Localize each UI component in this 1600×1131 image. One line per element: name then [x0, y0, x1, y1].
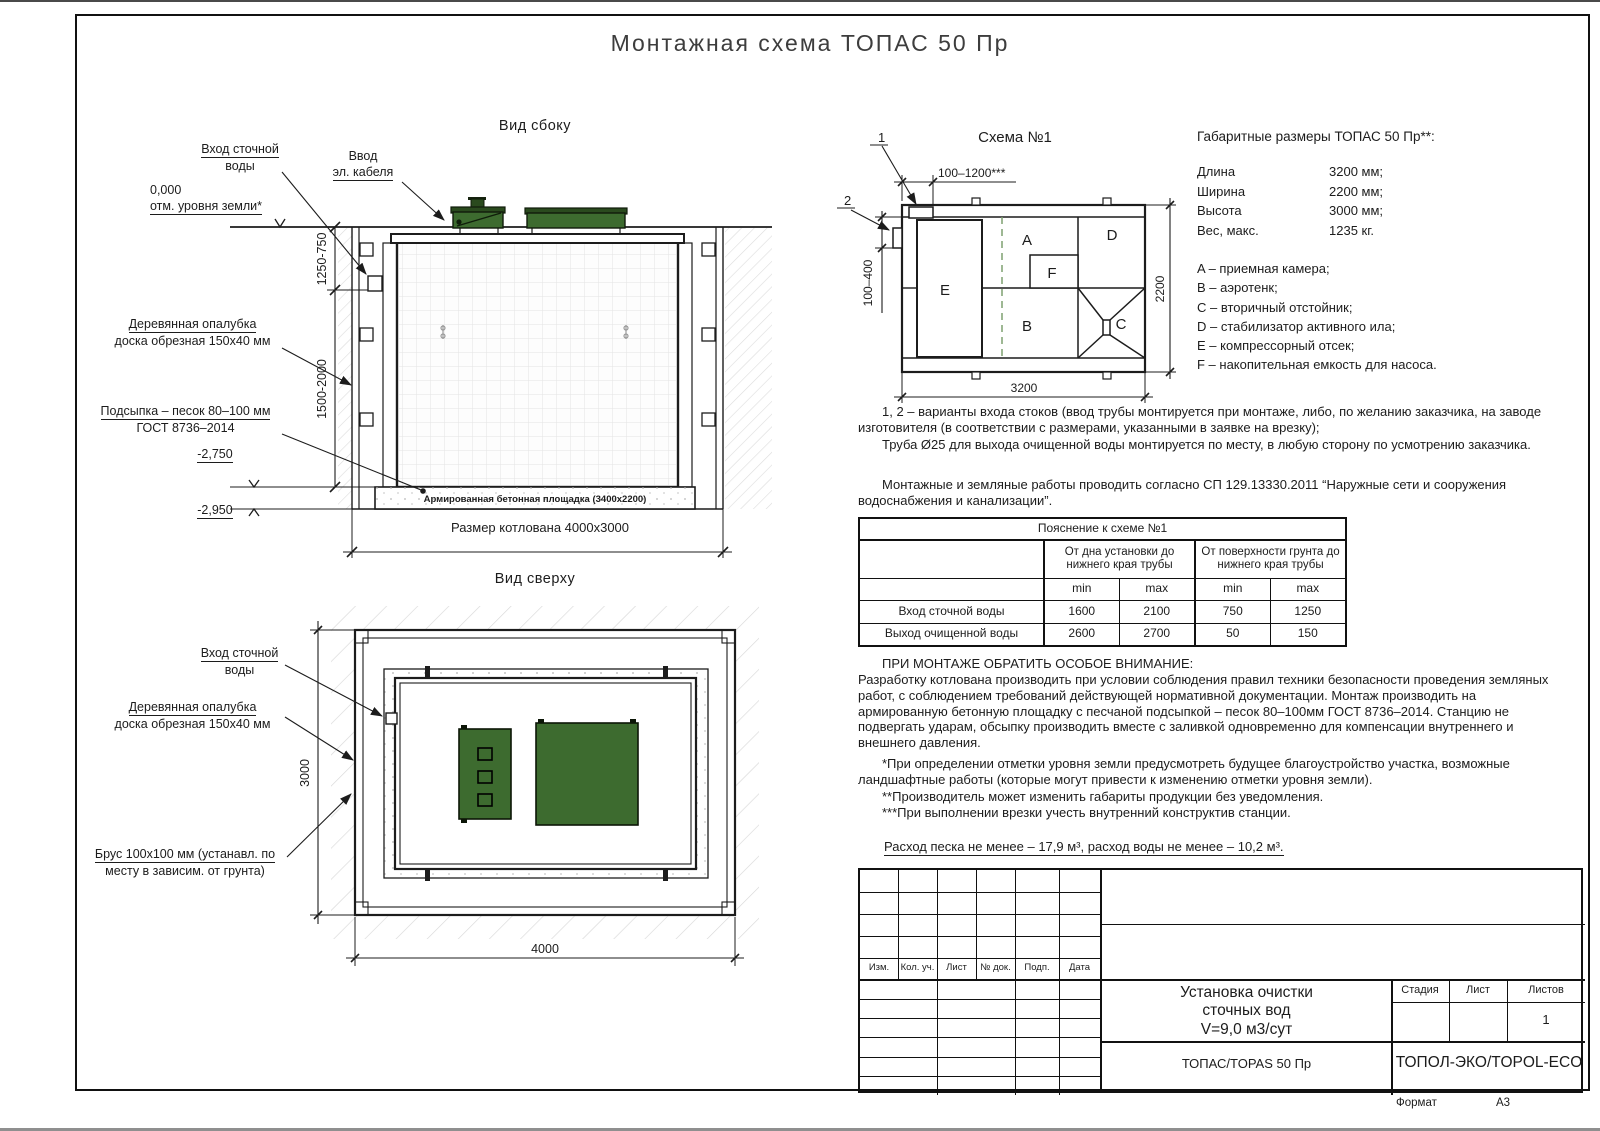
consumption-note: Расход песка не менее – 17,9 м³, расход … — [884, 839, 1544, 855]
side-formwork-label: Деревянная опалубкадоска обрезная 150х40… — [100, 316, 285, 349]
dim-right: 2200 — [1153, 275, 1167, 302]
top-view-drawing: 3000 4000 — [85, 565, 785, 980]
scheme1-title: Схема №1 — [978, 129, 1052, 146]
stage-label: Стадия — [1391, 984, 1449, 996]
comp-c: C — [1116, 316, 1127, 333]
stamp-col-data: Дата — [1059, 962, 1100, 973]
dim-3000: 3000 — [298, 759, 312, 787]
stamp-col-podp: Подп. — [1015, 962, 1059, 973]
table-min1: min — [1044, 578, 1119, 600]
table-group1: От дна установки до нижнего края трубы — [1044, 540, 1195, 578]
note-sp: Монтажные и земляные работы проводить со… — [858, 477, 1518, 509]
table-row: Вход сточной воды 1600 2100 750 1250 — [859, 600, 1346, 623]
attention-body: Разработку котлована производить при усл… — [858, 672, 1551, 751]
level-2750: -2,750 — [180, 446, 250, 463]
sheet-label: Лист — [1449, 984, 1507, 996]
comp-a: A — [1022, 232, 1032, 249]
zero-level-label: 0,000отм. уровня земли* — [150, 182, 275, 215]
legend-item: E – компрессорный отсек; — [1197, 336, 1587, 355]
pit-size-dim: Размер котлована 4000х3000 — [395, 520, 685, 535]
table-title: Пояснение к схеме №1 — [859, 518, 1346, 540]
green-cover-large — [536, 719, 638, 825]
attention-note2: **Производитель может изменить габариты … — [858, 789, 1551, 805]
dimensions-rows: Длина3200 мм; Ширина2200 мм; Высота3000 … — [1197, 162, 1527, 240]
side-cable-label: Вводэл. кабеля — [318, 148, 408, 181]
dim-value: 3000 мм; — [1329, 203, 1383, 218]
dim-value: 3200 мм; — [1329, 164, 1383, 179]
green-lid-left — [451, 197, 505, 228]
dim-1500-2000: 1500-2000 — [315, 359, 329, 419]
callout-1: 1 — [878, 130, 885, 145]
dim-top: 100–1200*** — [938, 166, 1006, 180]
table-min2: min — [1195, 578, 1270, 600]
sheets-label: Листов — [1507, 984, 1585, 996]
callout-2: 2 — [844, 193, 851, 208]
table-group2: От поверхности грунта до нижнего края тр… — [1195, 540, 1346, 578]
product-name: ТОПАС/TOPAS 50 Пр — [1102, 1056, 1391, 1071]
note-variants: 1, 2 – варианты входа стоков (ввод трубы… — [858, 404, 1550, 436]
top-formwork-label: Деревянная опалубкадоска обрезная 150х40… — [95, 699, 290, 732]
stamp-col-doc: № док. — [976, 962, 1015, 973]
title-block: Изм. Кол. уч. Лист № док. Подп. Дата Уст… — [858, 868, 1583, 1093]
doc-title: Установка очистки сточных вод V=9,0 м3/с… — [1102, 984, 1391, 1039]
level-2950: -2,950 — [180, 502, 250, 519]
legend-item: A – приемная камера; — [1197, 259, 1587, 278]
table-max2: max — [1270, 578, 1346, 600]
legend-item: D – стабилизатор активного ила; — [1197, 317, 1587, 336]
side-inlet-label: Вход сточнойводы — [185, 141, 295, 174]
comp-f: F — [1047, 265, 1056, 282]
note-pipe: Труба Ø25 для выхода очищенной воды монт… — [858, 437, 1550, 453]
slab-label: Армированная бетонная площадка (3400х220… — [424, 494, 647, 505]
green-cover-small — [459, 725, 511, 823]
dim-4000: 4000 — [531, 942, 559, 956]
table-row: Выход очищенной воды 2600 2700 50 150 — [859, 623, 1346, 646]
window-top-edge — [0, 0, 1600, 2]
legend-item: B – аэротенк; — [1197, 278, 1587, 297]
stamp-col-kol: Кол. уч. — [898, 962, 937, 973]
dimensions-title: Габаритные размеры ТОПАС 50 Пр**: — [1197, 129, 1537, 144]
table-corner — [859, 540, 1044, 578]
table-max1: max — [1119, 578, 1195, 600]
dim-value: 2200 мм; — [1329, 184, 1383, 199]
scheme1-drawing: Схема №1 E A F D B C 100–1200*** 1 2 — [820, 113, 1190, 413]
sheets-value: 1 — [1507, 1012, 1585, 1027]
sand-label: Подсыпка – песок 80–100 ммГОСТ 8736–2014 — [88, 403, 283, 436]
dim-bottom: 3200 — [1011, 381, 1038, 395]
format-label: Формат — [1396, 1097, 1437, 1109]
stamp-col-list: Лист — [937, 962, 976, 973]
attention-heading: ПРИ МОНТАЖЕ ОБРАТИТЬ ОСОБОЕ ВНИМАНИЕ: — [882, 656, 1542, 672]
beam-label: Брус 100х100 мм (устанавл. поместу в зав… — [80, 846, 290, 879]
stamp-col-izm: Изм. — [860, 962, 898, 973]
comp-e: E — [940, 282, 950, 299]
page-title: Монтажная схема ТОПАС 50 Пр — [510, 30, 1110, 57]
dim-left: 100–400 — [861, 259, 875, 306]
dim-label: Высота — [1197, 201, 1329, 221]
legend-item: F – накопительная емкость для насоса. — [1197, 355, 1587, 374]
explanation-table: Пояснение к схеме №1 От дна установки до… — [858, 517, 1347, 647]
comp-d: D — [1107, 227, 1118, 244]
dim-value: 1235 кг. — [1329, 223, 1374, 238]
top-inlet-label: Вход сточнойводы — [182, 645, 297, 678]
attention-note1: *При определении отметки уровня земли пр… — [858, 756, 1551, 788]
attention-note3: ***При выполнении врезки учесть внутренн… — [858, 805, 1551, 821]
comp-b: B — [1022, 318, 1032, 335]
dim-label: Вес, макс. — [1197, 221, 1329, 241]
legend: A – приемная камера; B – аэротенк; C – в… — [1197, 259, 1587, 375]
dim-label: Ширина — [1197, 182, 1329, 202]
dim-1250-750: 1250-750 — [315, 233, 329, 286]
green-lid-right — [525, 208, 627, 228]
legend-item: C – вторичный отстойник; — [1197, 298, 1587, 317]
format-value: А3 — [1496, 1097, 1510, 1109]
dim-label: Длина — [1197, 162, 1329, 182]
company-name: ТОПОЛ-ЭКО/TOPOL-ECO — [1393, 1054, 1585, 1072]
